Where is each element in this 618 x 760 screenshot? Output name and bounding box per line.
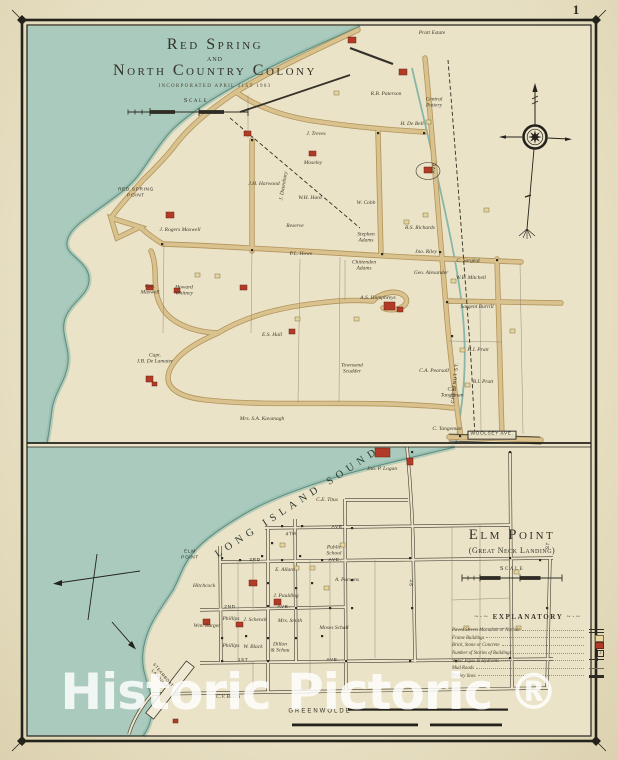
legend-leader <box>522 630 584 631</box>
top-map-title-block: Red Spring and North Country Colony INCO… <box>108 37 322 89</box>
legend-item: Frame Buildings <box>452 635 604 643</box>
legend-symbol-wrap <box>586 629 604 633</box>
legend-leader <box>513 653 584 654</box>
legend-symbol-wrap <box>586 675 604 678</box>
legend-leader <box>486 637 584 638</box>
bottom-map-subtitle: (Great Neck Landing) <box>432 546 592 555</box>
legend-item-label: Brick, Stone or Concrete <box>452 643 500 648</box>
legend-item: Mud Roads <box>452 665 604 673</box>
legend-symbol-wrap <box>586 642 604 649</box>
legend-item-label: Trolley lines <box>452 674 476 679</box>
frame-symbol <box>595 635 604 642</box>
legend: EXPLANATORY Paved Streets Macadam or Asp… <box>452 613 604 680</box>
page-number: 1 <box>566 2 586 18</box>
legend-symbol-wrap <box>586 635 604 642</box>
top-map-title-line2: North Country Colony <box>108 63 322 80</box>
legend-title: EXPLANATORY <box>452 613 604 621</box>
legend-item: Number of Stories of Buildings2 <box>452 650 604 658</box>
legend-item-label: Frame Buildings <box>452 636 484 641</box>
stories-symbol: 2 <box>597 650 604 657</box>
legend-leader <box>501 660 584 661</box>
water-symbol <box>589 659 604 663</box>
legend-items: Paved Streets Macadam or AsphaltFrame Bu… <box>452 627 604 680</box>
top-map-subtitle: INCORPORATED APRIL 21ST 1903 <box>108 84 322 89</box>
legend-item-label: Paved Streets Macadam or Asphalt <box>452 628 520 633</box>
legend-symbol-wrap <box>586 668 604 670</box>
legend-item: Trolley lines <box>452 673 604 681</box>
atlas-page: 1 Red Spring and North Country Colony IN… <box>0 0 618 760</box>
bottom-map-title-block: Elm Point (Great Neck Landing) <box>432 527 592 555</box>
paved-symbol <box>589 629 604 633</box>
legend-item-label: Water Pipes & Hydrants <box>452 659 499 664</box>
trolley-symbol <box>589 675 604 678</box>
legend-leader <box>476 668 584 669</box>
legend-item-label: Mud Roads <box>452 666 474 671</box>
legend-symbol-wrap <box>586 659 604 663</box>
legend-item: Water Pipes & Hydrants <box>452 657 604 665</box>
mud-symbol <box>589 668 604 670</box>
legend-item: Brick, Stone or Concrete <box>452 642 604 650</box>
legend-leader <box>478 675 584 676</box>
top-map-title-line1: Red Spring <box>108 37 322 54</box>
legend-item-label: Number of Stories of Buildings <box>452 651 511 656</box>
bottom-map-title: Elm Point <box>432 527 592 544</box>
brick-symbol <box>595 642 604 649</box>
legend-item: Paved Streets Macadam or Asphalt <box>452 627 604 635</box>
legend-leader <box>502 645 584 646</box>
legend-symbol-wrap: 2 <box>586 650 604 657</box>
